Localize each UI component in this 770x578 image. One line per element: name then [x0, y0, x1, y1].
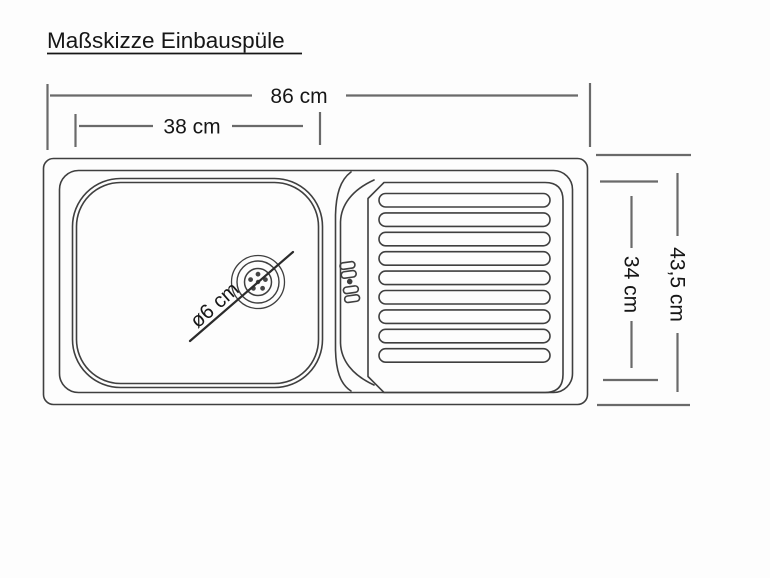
- drainboard-rib: [379, 329, 550, 343]
- drain-hole: [260, 286, 265, 291]
- knockout-mark: [343, 285, 359, 294]
- drainboard-rib: [379, 252, 550, 266]
- basin-inner: [77, 183, 319, 384]
- sink-rim: [60, 171, 573, 393]
- page-title: Maßskizze Einbauspüle: [47, 28, 285, 53]
- drain-hole: [248, 277, 253, 282]
- drainboard-rib: [379, 271, 550, 285]
- drainboard-ribs: [379, 194, 550, 363]
- divider-panel-inner: [341, 180, 375, 385]
- dimension-lines-group: [48, 83, 692, 405]
- title-group: Maßskizze Einbauspüle: [47, 28, 302, 54]
- basin-width-label: 38 cm: [163, 116, 220, 139]
- drain-hole: [256, 272, 261, 277]
- drainboard-rib: [379, 194, 550, 208]
- drainboard-outline: [368, 183, 563, 393]
- sink-outer-edge: [44, 159, 588, 405]
- drainboard-rib: [379, 349, 550, 363]
- knockout-mark: [344, 294, 360, 303]
- total-width-label: 86 cm: [270, 85, 327, 108]
- sink-drawing-group: [44, 159, 588, 405]
- tap-hole-marks: [340, 261, 360, 303]
- total-depth-label: 43,5 cm: [666, 247, 689, 322]
- drainboard-rib: [379, 232, 550, 246]
- drainboard-rib: [379, 291, 550, 305]
- inner-depth-label: 34 cm: [620, 256, 643, 313]
- drainboard-rib: [379, 213, 550, 227]
- knockout-dot: [347, 279, 352, 284]
- drain-diameter-label: ø6 cm: [186, 278, 244, 333]
- drainboard-rib: [379, 310, 550, 324]
- sink-dimension-drawing: Maßskizze Einbauspüle: [0, 0, 770, 578]
- knockout-mark: [341, 270, 357, 279]
- knockout-mark: [340, 261, 356, 270]
- dimension-sketch-page: Maßskizze Einbauspüle: [0, 0, 770, 578]
